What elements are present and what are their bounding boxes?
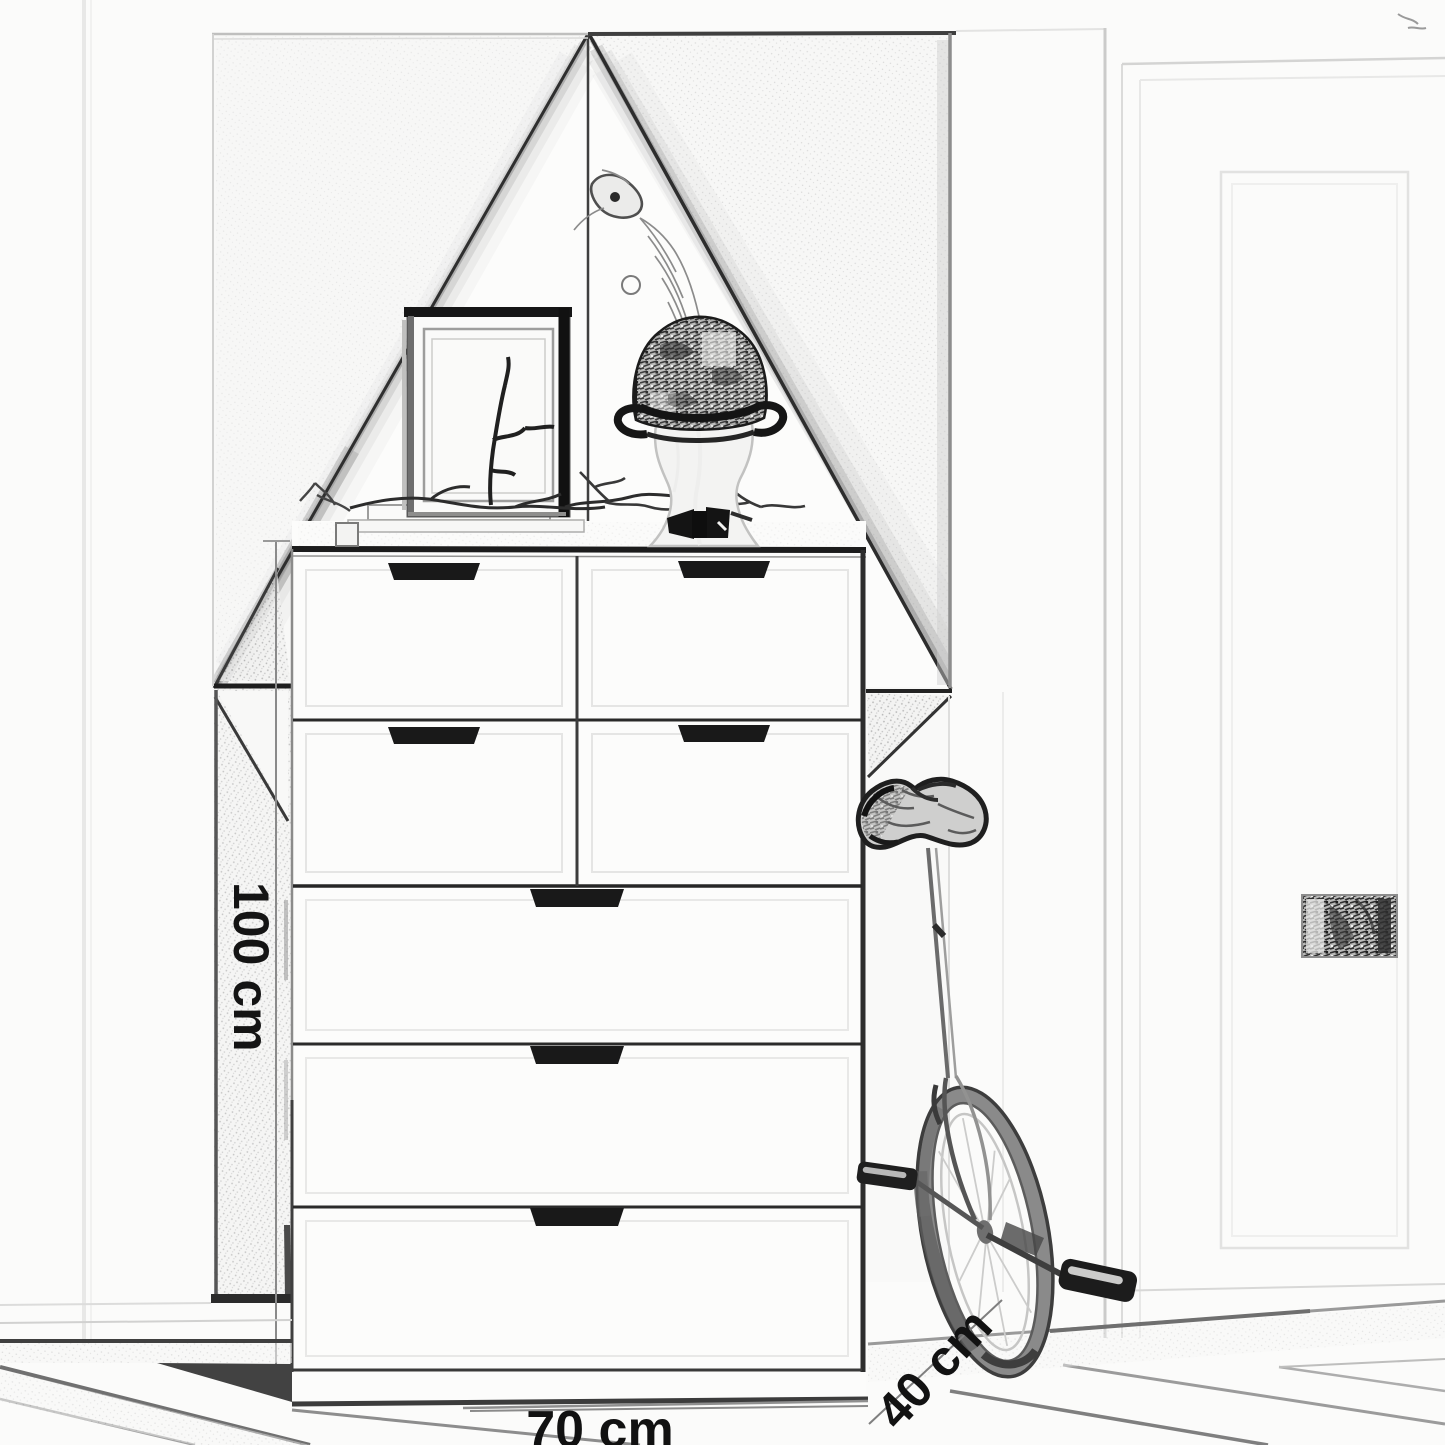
svg-text:100 cm: 100 cm — [223, 882, 279, 1052]
svg-text:70 cm: 70 cm — [526, 1401, 673, 1445]
